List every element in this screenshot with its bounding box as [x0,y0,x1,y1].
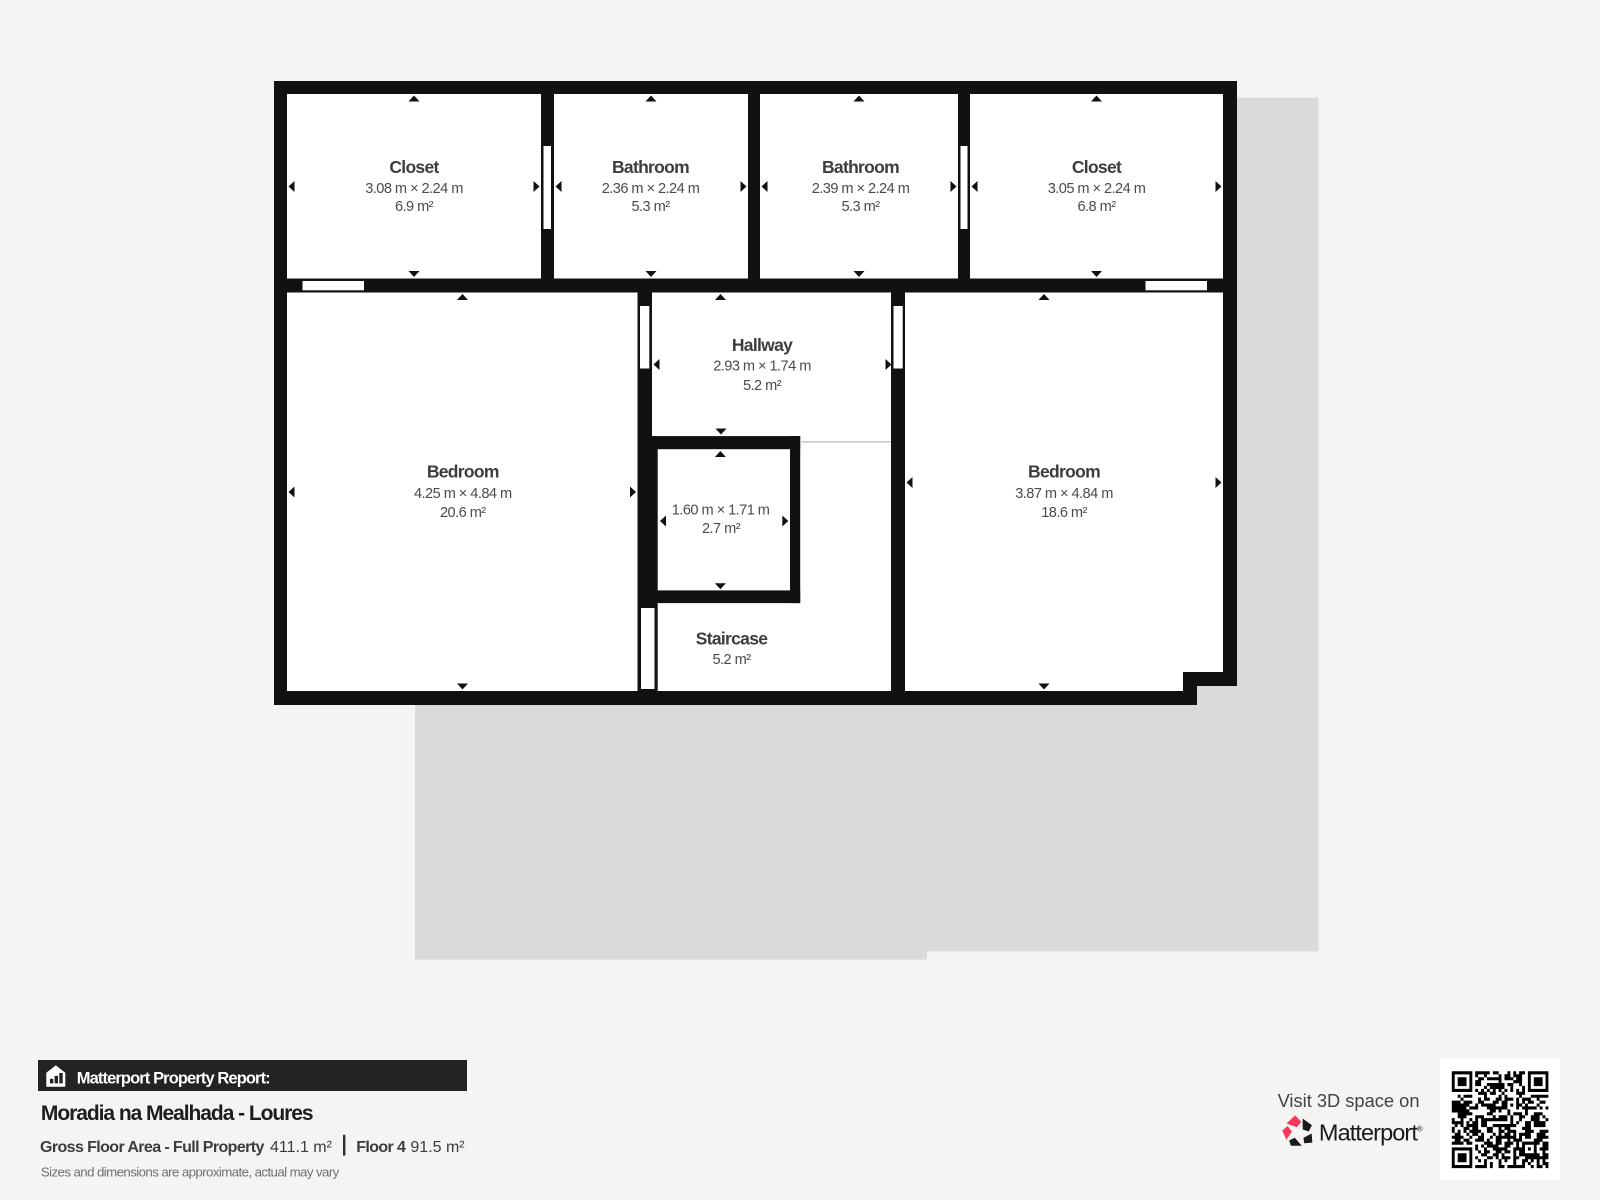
svg-text:3.08 m × 2.24 m: 3.08 m × 2.24 m [365,181,463,197]
svg-text:Matterport: Matterport [1319,1120,1418,1146]
svg-text:Closet: Closet [389,157,439,177]
svg-text:5.3 m²: 5.3 m² [841,199,880,215]
svg-text:2.93 m × 1.74 m: 2.93 m × 1.74 m [713,359,811,375]
svg-text:Sizes and dimensions are appro: Sizes and dimensions are approximate, ac… [41,1164,340,1179]
svg-text:Bathroom: Bathroom [822,157,899,177]
svg-text:3.87 m × 4.84 m: 3.87 m × 4.84 m [1015,486,1113,502]
svg-text:Gross Floor Area - Full Proper: Gross Floor Area - Full Property [40,1139,265,1156]
svg-text:Bedroom: Bedroom [1028,462,1100,482]
svg-text:18.6 m²: 18.6 m² [1041,505,1087,521]
svg-text:2.7 m²: 2.7 m² [702,521,741,537]
svg-text:1.60 m × 1.71 m: 1.60 m × 1.71 m [672,502,770,518]
svg-text:Hallway: Hallway [732,335,793,355]
svg-text:2.36 m × 2.24 m: 2.36 m × 2.24 m [602,181,700,197]
svg-text:Floor 4: Floor 4 [356,1139,406,1156]
svg-text:411.1 m²: 411.1 m² [270,1139,333,1156]
svg-text:5.3 m²: 5.3 m² [631,199,670,215]
svg-text:4.25 m × 4.84 m: 4.25 m × 4.84 m [414,486,512,502]
svg-text:6.9 m²: 6.9 m² [395,199,434,215]
svg-text:®: ® [1417,1125,1423,1134]
svg-text:91.5 m²: 91.5 m² [410,1139,465,1156]
svg-text:Staircase: Staircase [696,629,769,649]
svg-text:6.8 m²: 6.8 m² [1077,199,1116,215]
svg-text:Visit 3D space on: Visit 3D space on [1278,1090,1420,1111]
svg-text:5.2 m²: 5.2 m² [712,652,751,668]
svg-text:2.39 m × 2.24 m: 2.39 m × 2.24 m [812,181,910,197]
svg-text:Bathroom: Bathroom [612,157,689,177]
svg-text:Matterport Property Report:: Matterport Property Report: [77,1069,270,1087]
svg-text:Moradia na Mealhada - Loures: Moradia na Mealhada - Loures [41,1102,313,1125]
svg-text:5.2 m²: 5.2 m² [743,378,782,394]
svg-text:3.05 m × 2.24 m: 3.05 m × 2.24 m [1048,181,1146,197]
svg-text:Bedroom: Bedroom [427,462,499,482]
svg-text:20.6 m²: 20.6 m² [440,505,486,521]
svg-text:Closet: Closet [1072,157,1122,177]
